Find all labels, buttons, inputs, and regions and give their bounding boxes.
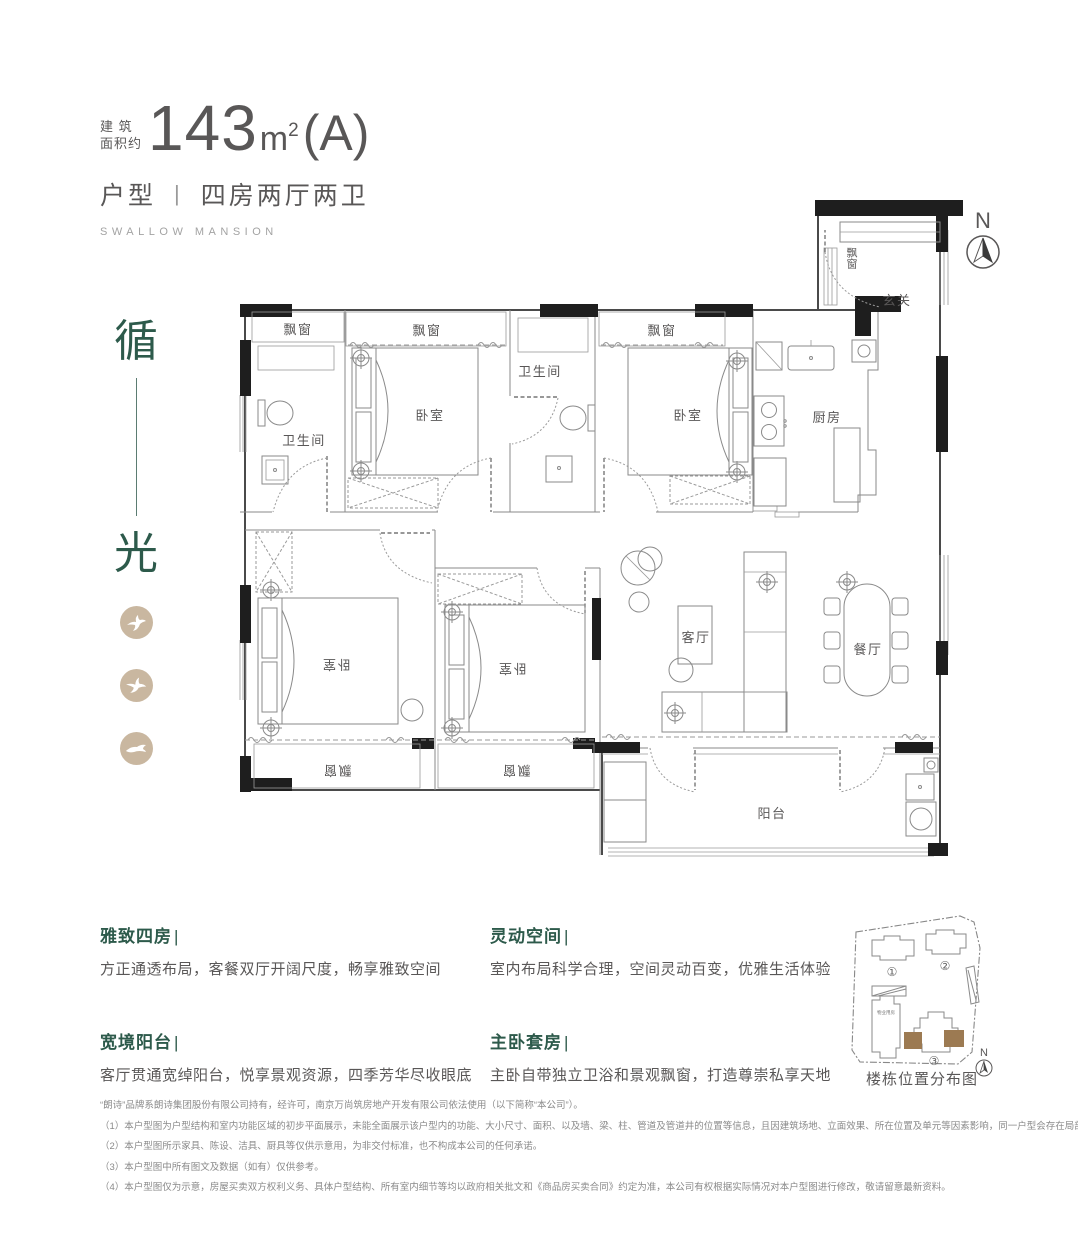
sink — [262, 456, 288, 484]
site-map-caption: 楼栋位置分布图 — [842, 1068, 1002, 1089]
building-3-number: ③ — [929, 1054, 940, 1068]
label-bathroom: 卫生间 — [282, 433, 326, 448]
feature-title-text: 宽境阳台 — [100, 1033, 172, 1052]
balcony-fixtures — [604, 758, 938, 842]
label-bedroom: 卧室 — [673, 408, 702, 423]
feature-title-bar: | — [564, 927, 569, 946]
area-unit: m2 — [260, 114, 299, 156]
feature-desc: 室内布局科学合理，空间灵动百变，优雅生活体验 — [490, 958, 870, 979]
label-bedroom: 卧室 — [497, 661, 526, 676]
label-dining-room: 餐厅 — [853, 642, 882, 657]
floor-plan: 飘窗 飘窗 飘窗 卫生间 卫生间 卧室 卧室 厨房 卧室 卧室 飘窗 飘窗 客厅… — [235, 198, 1025, 878]
entry-closet — [840, 222, 940, 242]
feature-title: 雅致四房| — [100, 922, 480, 947]
rail-char-bottom: 光 — [108, 528, 164, 580]
label-bay-window: 飘窗 — [647, 323, 676, 338]
sink — [546, 456, 572, 482]
swallow-icon — [120, 606, 153, 639]
area-line: 建 筑 面积约 143 m2 (A) — [100, 98, 369, 158]
label-bedroom: 卧室 — [415, 408, 444, 423]
rail-char-top: 循 — [108, 316, 164, 368]
feature-title-text: 雅致四房 — [100, 927, 172, 946]
stool — [669, 658, 693, 682]
disclaimer-line: “朗诗”品牌系朗诗集团股份有限公司持有，经许可，南京万尚筑房地产开发有限公司依法… — [100, 1096, 1078, 1117]
feature-title: 主卧套房| — [490, 1028, 870, 1053]
label-bay-window: 飘窗 — [501, 763, 530, 778]
building-3-highlight-left — [904, 1032, 922, 1049]
building-3-highlight-right — [944, 1030, 964, 1047]
room-labels: 飘窗 飘窗 飘窗 卫生间 卫生间 卧室 卧室 厨房 卧室 卧室 飘窗 飘窗 客厅… — [282, 247, 911, 821]
toilet — [560, 405, 595, 431]
feature-desc: 方正通透布局，客餐双厅开阔尺度，畅享雅致空间 — [100, 958, 480, 979]
tall-building — [872, 996, 900, 1058]
area-value: 143 — [148, 98, 258, 158]
building-1-number: ① — [887, 965, 898, 979]
washing-machine — [910, 808, 932, 830]
area-unit-sup: 2 — [288, 120, 299, 141]
compass-n-label: N — [975, 208, 991, 233]
building-1-outline — [872, 936, 914, 960]
feature-item: 主卧套房| 主卧自带独立卫浴和景观飘窗，打造尊崇私享天地 — [490, 1028, 870, 1085]
label-living-room: 客厅 — [681, 630, 710, 645]
feature-title-bar: | — [174, 1033, 179, 1052]
area-label: 建 筑 面积约 — [100, 118, 142, 152]
plant — [621, 547, 662, 612]
type-label: 户型 — [100, 176, 156, 212]
tall-building-label: 物业用房 — [877, 1009, 895, 1016]
feature-title-text: 灵动空间 — [490, 927, 562, 946]
swallow-icon — [120, 732, 153, 765]
disclaimer-line: （3）本户型图中所有图文及数据（如有）仅供参考。 — [100, 1158, 1078, 1179]
feature-desc: 主卧自带独立卫浴和景观飘窗，打造尊崇私享天地 — [490, 1064, 870, 1085]
floorplan-brochure-page: 建 筑 面积约 143 m2 (A) 户型 | 四房两厅两卫 SWALLOW M… — [0, 0, 1080, 1245]
area-unit-base: m — [260, 120, 288, 158]
site-map-compass-n: N — [980, 1047, 988, 1059]
feature-title: 灵动空间| — [490, 922, 870, 947]
label-kitchen: 厨房 — [812, 410, 841, 425]
slim-building — [966, 966, 979, 1004]
feature-title-bar: | — [174, 927, 179, 946]
rail-icons — [108, 606, 164, 765]
label-bay-window: 飘窗 — [283, 322, 312, 337]
feature-title-text: 主卧套房 — [490, 1033, 562, 1052]
disclaimer-line: （4）本户型图仅为示意，房屋买卖双方权利义务、具体户型结构、所有室内细节等均以政… — [100, 1178, 1078, 1199]
side-rail: 循 光 — [108, 316, 164, 795]
feature-item: 雅致四房| 方正通透布局，客餐双厅开阔尺度，畅享雅致空间 — [100, 922, 480, 979]
rail-divider-line — [136, 378, 137, 516]
site-map: 物业用房 ① ② ③ N — [842, 910, 1002, 1085]
feature-title-bar: | — [564, 1033, 569, 1052]
column-markers — [260, 347, 858, 739]
label-entry: 玄关 — [882, 293, 911, 308]
swallow-icon — [120, 669, 153, 702]
label-balcony: 阳台 — [757, 806, 786, 821]
label-bay-window: 飘窗 — [412, 323, 441, 338]
area-suffix: (A) — [303, 108, 370, 158]
area-label-line1: 建 筑 — [100, 118, 142, 135]
dining-table — [824, 584, 908, 696]
area-label-line2: 面积约 — [100, 135, 142, 152]
type-divider: | — [174, 181, 183, 207]
bay-windows — [245, 248, 940, 788]
feature-desc: 客厅贯通宽绰阳台，悦享景观资源，四季芳华尽收眼底 — [100, 1064, 480, 1085]
building-2-outline — [926, 930, 966, 954]
label-bathroom: 卫生间 — [518, 364, 562, 379]
feature-item: 宽境阳台| 客厅贯通宽绰阳台，悦享景观资源，四季芳华尽收眼底 — [100, 1028, 480, 1085]
disclaimer-line: （1）本户型图为户型结构和室内功能区域的初步平面展示，未能全面展示该户型内的功能… — [100, 1117, 1078, 1138]
building-2-number: ② — [940, 959, 951, 973]
disclaimer-line: （2）本户型图所示家具、陈设、洁具、厨具等仅供示意用，为非交付标准，也不构成本公… — [100, 1137, 1078, 1158]
label-bedroom: 卧室 — [321, 657, 350, 672]
disclaimer: “朗诗”品牌系朗诗集团股份有限公司持有，经许可，南京万尚筑房地产开发有限公司依法… — [100, 1096, 1078, 1199]
feature-title: 宽境阳台| — [100, 1028, 480, 1053]
toilet — [258, 400, 293, 426]
feature-item: 灵动空间| 室内布局科学合理，空间灵动百变，优雅生活体验 — [490, 922, 870, 979]
label-bay-window-vertical: 飘窗 — [845, 247, 858, 270]
label-bay-window: 飘窗 — [322, 763, 351, 778]
compass-icon: N — [967, 208, 999, 268]
